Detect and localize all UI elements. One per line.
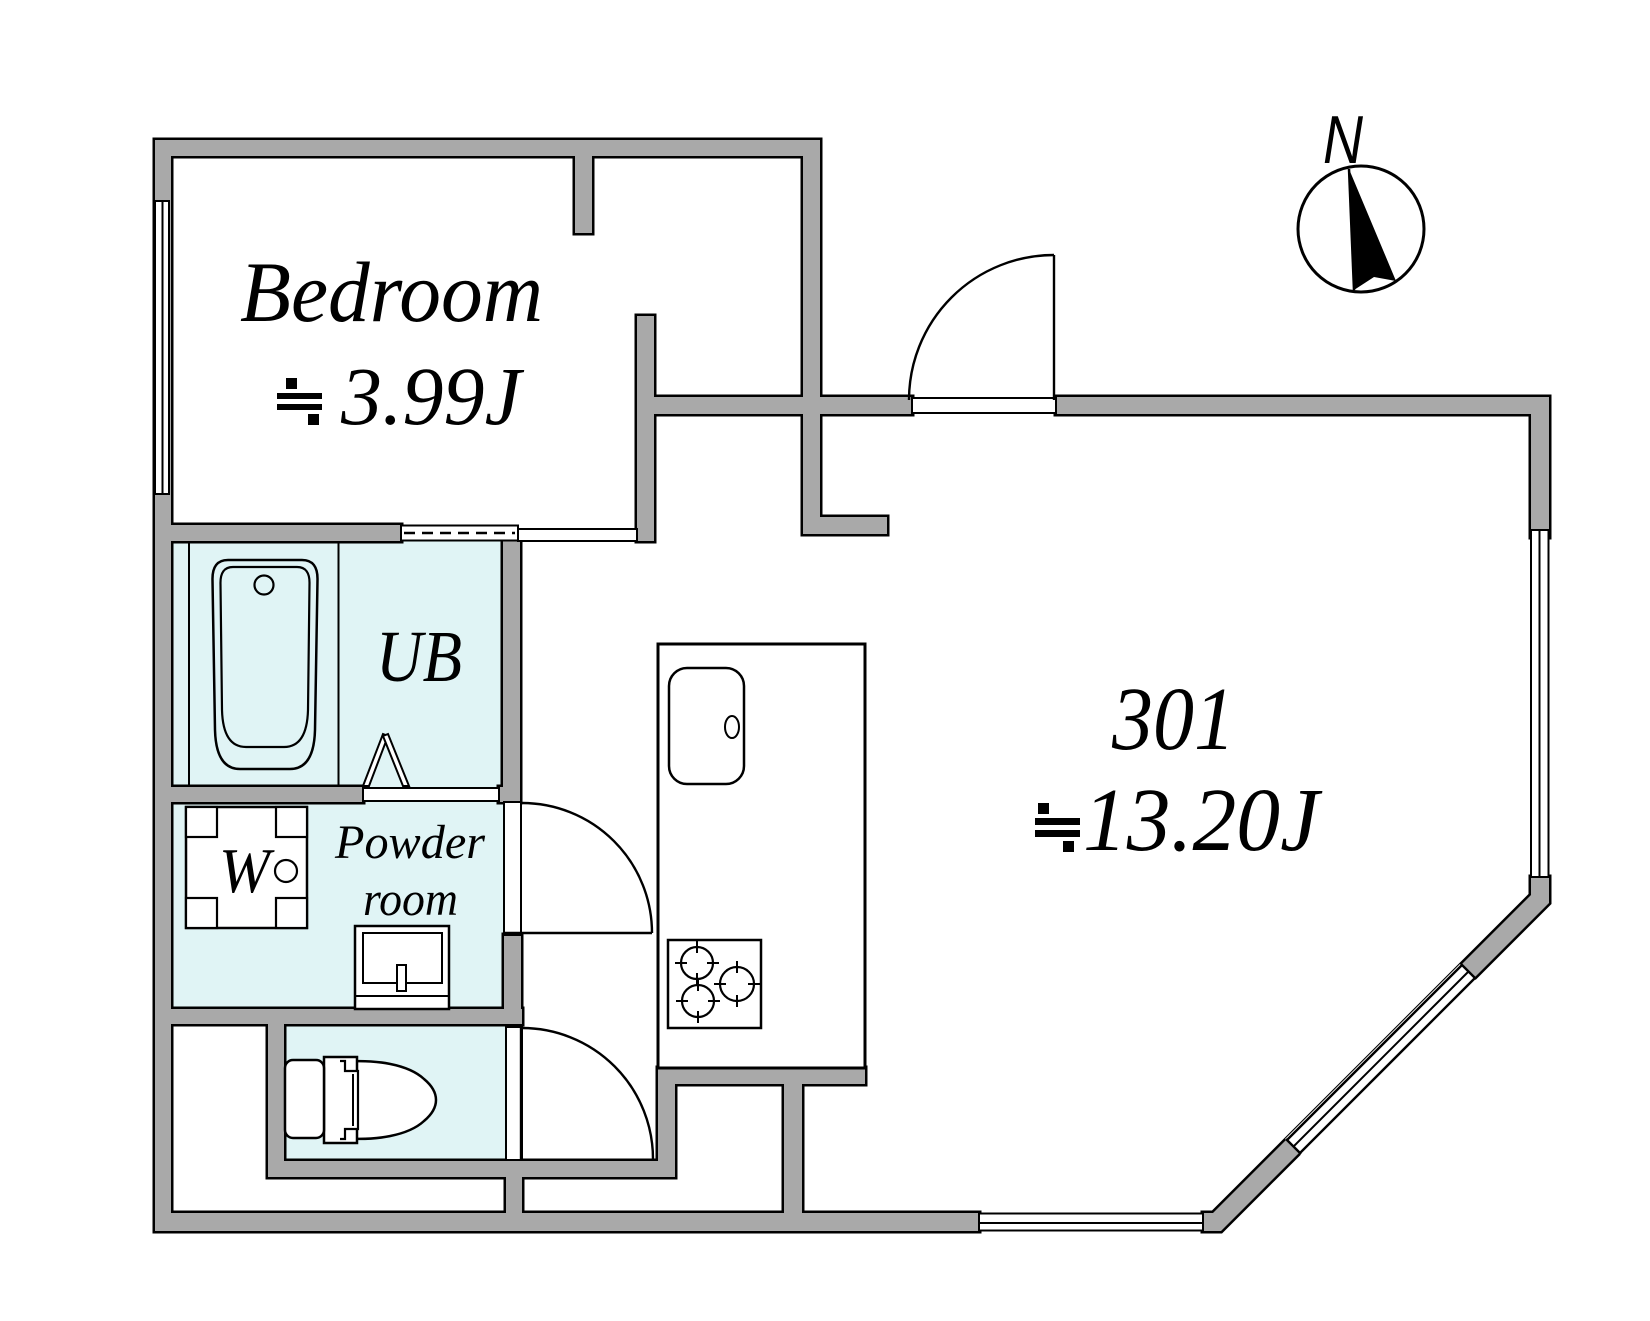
svg-text:W: W [219,835,275,906]
svg-text:Powder: Powder [334,816,485,869]
svg-text:room: room [363,873,458,926]
svg-text:3.99J: 3.99J [340,350,525,442]
svg-text:301: 301 [1111,670,1235,769]
svg-text:UB: UB [376,616,462,697]
svg-text:Bedroom: Bedroom [240,244,543,340]
svg-text:13.20J: 13.20J [1083,771,1323,870]
